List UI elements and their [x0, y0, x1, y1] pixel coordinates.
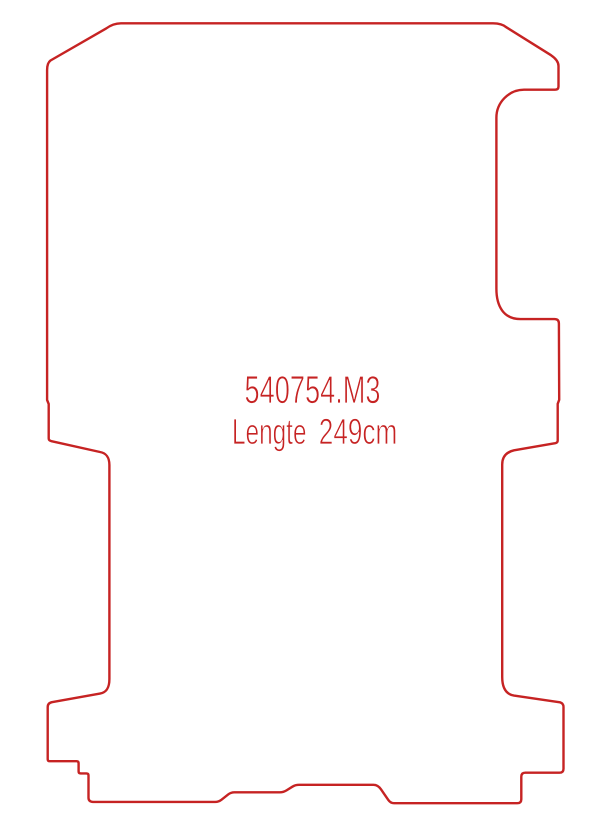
svg-text:249cm: 249cm [319, 411, 398, 452]
svg-text:540754.M3: 540754.M3 [245, 369, 381, 412]
svg-text:Lengte: Lengte [232, 411, 307, 452]
